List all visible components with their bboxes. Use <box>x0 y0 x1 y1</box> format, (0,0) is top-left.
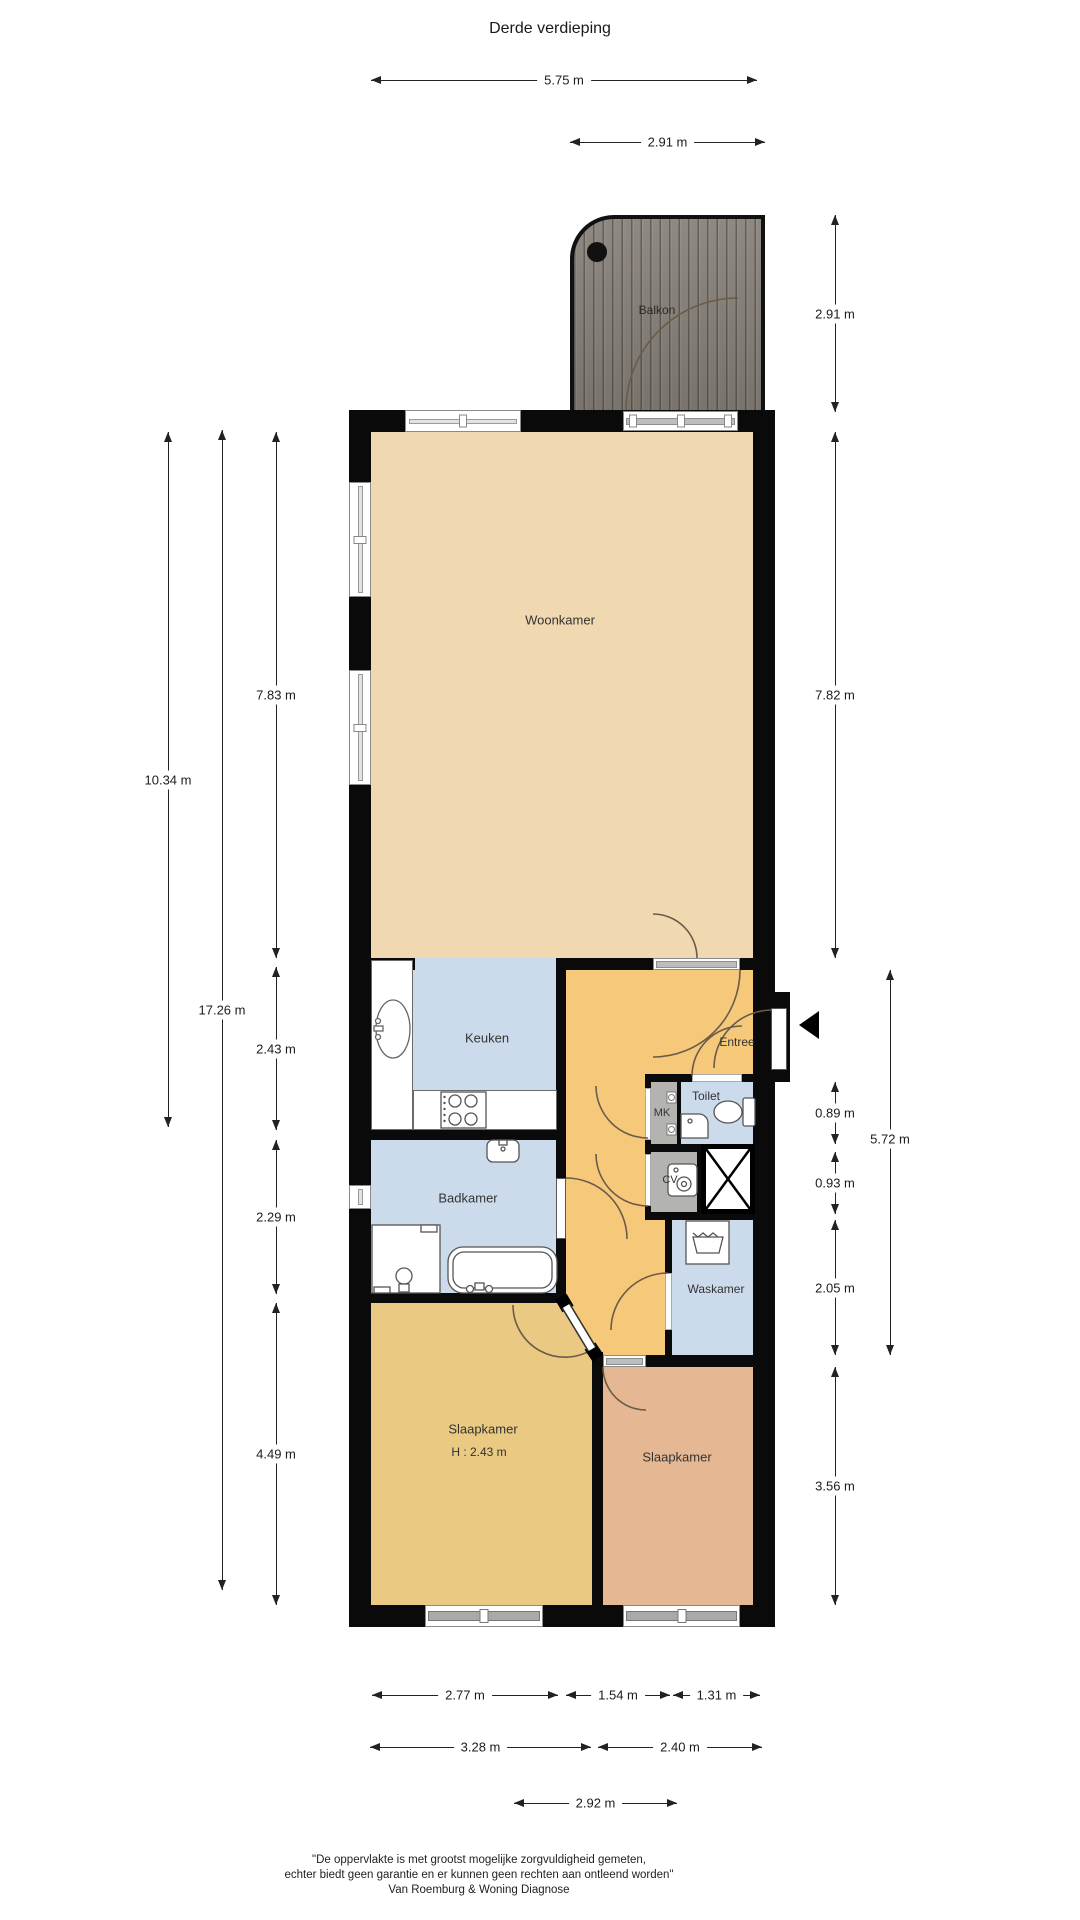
dim-right-slaapkamer2: 3.56 m <box>795 1367 875 1605</box>
window-woonkamer-left-lower <box>349 670 371 785</box>
wall-woonkamer-bottom-mid <box>556 958 653 970</box>
wall-slaapkamer1-right <box>592 1352 603 1605</box>
dim-bottom-slaapkamer1-total: 3.28 m <box>370 1740 591 1754</box>
dim-bottom-slaapkamer2-total: 2.40 m <box>598 1740 762 1754</box>
label-slaapkamer1-height: H : 2.43 m <box>451 1445 506 1459</box>
window-woonkamer-top <box>405 410 521 432</box>
label-slaapkamer2: Slaapkamer <box>642 1450 711 1465</box>
label-mk: MK <box>654 1107 671 1119</box>
room-woonkamer <box>371 432 753 958</box>
page-title: Derde verdieping <box>489 20 611 38</box>
dim-bottom-extra: 2.92 m <box>514 1796 677 1810</box>
entrance-arrow-icon <box>799 1011 819 1039</box>
door-leaf-badkamer <box>556 1178 566 1239</box>
dim-right-waskamer: 2.05 m <box>795 1220 875 1355</box>
floorplan-page: Derde verdieping <box>0 0 1080 1920</box>
wall-badkamer-bottom <box>349 1293 564 1303</box>
door-gap-waskamer <box>665 1273 672 1330</box>
door-gap-toilet <box>692 1074 742 1082</box>
room-badkamer <box>371 1140 556 1293</box>
kitchen-counter-left <box>371 960 413 1130</box>
disclaimer-line3: Van Roemburg & Woning Diagnose <box>285 1883 674 1898</box>
balcony-door <box>623 411 738 431</box>
dim-bottom-waskamer: 1.31 m <box>673 1688 760 1702</box>
door-gap-mk <box>645 1088 651 1140</box>
label-cv: CV <box>662 1174 677 1186</box>
window-slaapkamer2-bottom <box>623 1605 740 1627</box>
window-badkamer <box>349 1185 371 1209</box>
label-woonkamer: Woonkamer <box>525 613 595 628</box>
wall-woonkamer-bottom-right <box>740 958 753 970</box>
disclaimer-line2: echter biedt geen garantie en er kunnen … <box>285 1868 674 1883</box>
door-woonkamer-entree <box>653 958 740 970</box>
dim-right-woonkamer: 7.82 m <box>795 432 875 958</box>
ventilation-shaft <box>701 1144 755 1214</box>
disclaimer: "De oppervlakte is met grootst mogelijke… <box>285 1853 674 1898</box>
dim-right-balcony: 2.91 m <box>795 215 875 412</box>
label-balkon: Balkon <box>639 303 676 317</box>
label-slaapkamer1: Slaapkamer <box>448 1422 517 1437</box>
dim-bottom-slaapkamer1: 2.77 m <box>372 1688 558 1702</box>
dim-left-woonkamer: 7.83 m <box>236 432 316 958</box>
wall-waskamer-left-bottom <box>665 1330 672 1355</box>
wall-toilet-top-right <box>742 1074 753 1082</box>
dim-left-slaapkamer1: 4.49 m <box>236 1303 316 1605</box>
wall-mk-toilet-divider <box>677 1082 681 1144</box>
label-entree: Entree <box>719 1035 754 1049</box>
dim-left-keuken: 2.43 m <box>236 967 316 1130</box>
disclaimer-line1: "De oppervlakte is met grootst mogelijke… <box>285 1853 674 1868</box>
label-badkamer: Badkamer <box>438 1191 497 1206</box>
wall-toilet-top-left <box>645 1074 692 1082</box>
dim-left-badkamer: 2.29 m <box>236 1140 316 1294</box>
room-slaapkamer2 <box>603 1367 753 1605</box>
dim-top-total-width: 5.75 m <box>371 73 757 87</box>
label-toilet: Toilet <box>692 1089 720 1103</box>
front-door-leaf <box>771 1008 787 1070</box>
label-keuken: Keuken <box>465 1031 509 1046</box>
kitchen-counter-bottom <box>413 1090 557 1130</box>
door-gap-cv <box>645 1154 651 1206</box>
window-woonkamer-left-upper <box>349 482 371 597</box>
wall-keuken-bottom <box>349 1130 566 1140</box>
wall-keuken-right-upper <box>556 958 566 1178</box>
label-waskamer: Waskamer <box>688 1282 745 1296</box>
dim-top-balcony-width: 2.91 m <box>570 135 765 149</box>
dim-bottom-hal: 1.54 m <box>566 1688 670 1702</box>
window-slaapkamer1-bottom <box>425 1605 543 1627</box>
wall-waskamer-left-top <box>665 1220 672 1273</box>
door-slaapkamer2 <box>603 1355 646 1367</box>
wall-slaapkamer2-top-right <box>646 1355 775 1367</box>
